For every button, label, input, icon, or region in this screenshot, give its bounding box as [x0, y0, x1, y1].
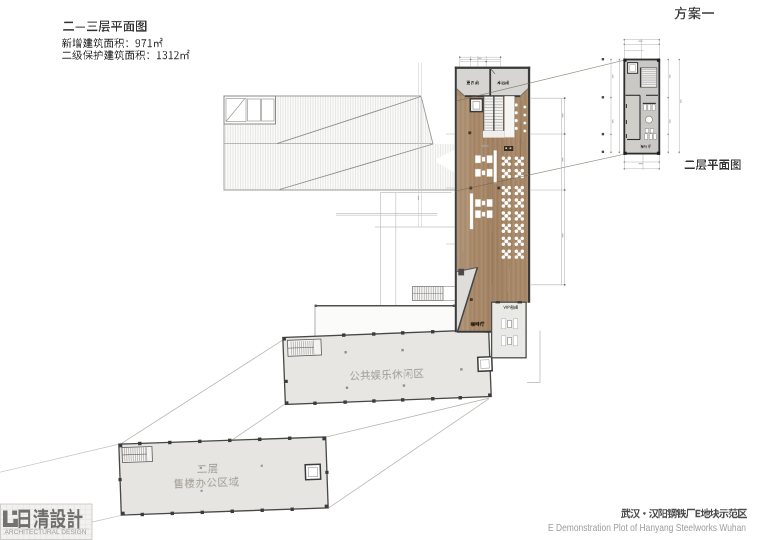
svg-text:ARCHITECTURAL DESIGN: ARCHITECTURAL DESIGN — [5, 529, 87, 536]
svg-text:E Demonstration Plot of Hanyan: E Demonstration Plot of Hanyang Steelwor… — [548, 523, 746, 534]
